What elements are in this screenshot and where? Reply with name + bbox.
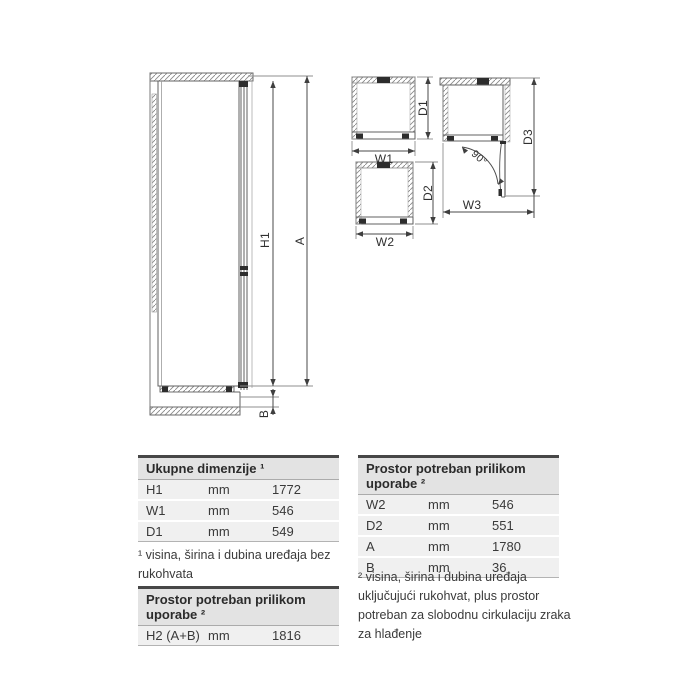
row-unit: mm — [208, 480, 272, 499]
table-overall-dimensions: Ukupne dimenzije ¹ H1 mm 1772 W1 mm 546 … — [138, 455, 339, 542]
table-title: Prostor potreban prilikom uporabe ² — [138, 589, 339, 626]
table-row: A mm 1780 — [358, 535, 559, 556]
table-row: H2 (A+B) mm 1816 — [138, 626, 339, 645]
appliance-spec-sheet: H1 A B W1 D1 W2 D2 W3 D3 90° Ukupne dime… — [0, 0, 700, 700]
footnote-overall: ¹ visina, širina i dubina uređaja bez ru… — [138, 546, 341, 584]
row-label: W2 — [366, 495, 428, 514]
row-unit: mm — [208, 626, 272, 645]
table-title: Prostor potreban prilikom uporabe ² — [358, 458, 559, 495]
row-label: A — [366, 537, 428, 556]
dim-label-w3: W3 — [463, 198, 482, 212]
table-space-required: Prostor potreban prilikom uporabe ² W2 m… — [358, 455, 559, 578]
row-value: 546 — [272, 501, 339, 520]
plan-view-w1-d1 — [352, 77, 433, 156]
dim-label-w2: W2 — [376, 235, 395, 249]
table-row: D1 mm 549 — [138, 520, 339, 541]
row-unit: mm — [428, 516, 492, 535]
row-value: 546 — [492, 495, 559, 514]
row-unit: mm — [428, 537, 492, 556]
dimension-drawing — [0, 0, 700, 700]
footnote-space-required: ² visina, širina i dubina uređaja uključ… — [358, 568, 580, 644]
dim-label-h1: H1 — [258, 232, 272, 248]
plan-view-door-open — [440, 78, 540, 218]
row-label: D2 — [366, 516, 428, 535]
table-space-required-h2: Prostor potreban prilikom uporabe ² H2 (… — [138, 586, 339, 646]
side-view-drawing — [150, 73, 313, 415]
row-value: 1816 — [272, 626, 339, 645]
row-label: D1 — [146, 522, 208, 541]
row-unit: mm — [428, 495, 492, 514]
row-label: H1 — [146, 480, 208, 499]
dim-label-w1: W1 — [375, 152, 394, 166]
dim-label-d1: D1 — [416, 100, 430, 116]
row-value: 1780 — [492, 537, 559, 556]
dim-label-d2: D2 — [421, 185, 435, 201]
row-value: 1772 — [272, 480, 339, 499]
row-unit: mm — [208, 501, 272, 520]
row-label: W1 — [146, 501, 208, 520]
table-row: W2 mm 546 — [358, 495, 559, 514]
row-unit: mm — [208, 522, 272, 541]
table-row: H1 mm 1772 — [138, 480, 339, 499]
dim-label-d3: D3 — [521, 129, 535, 145]
row-label: H2 (A+B) — [146, 626, 208, 645]
row-value: 551 — [492, 516, 559, 535]
dim-label-b: B — [257, 410, 271, 418]
row-value: 549 — [272, 522, 339, 541]
table-row: D2 mm 551 — [358, 514, 559, 535]
dim-label-a: A — [293, 237, 307, 245]
table-row: W1 mm 546 — [138, 499, 339, 520]
table-title: Ukupne dimenzije ¹ — [138, 458, 339, 480]
